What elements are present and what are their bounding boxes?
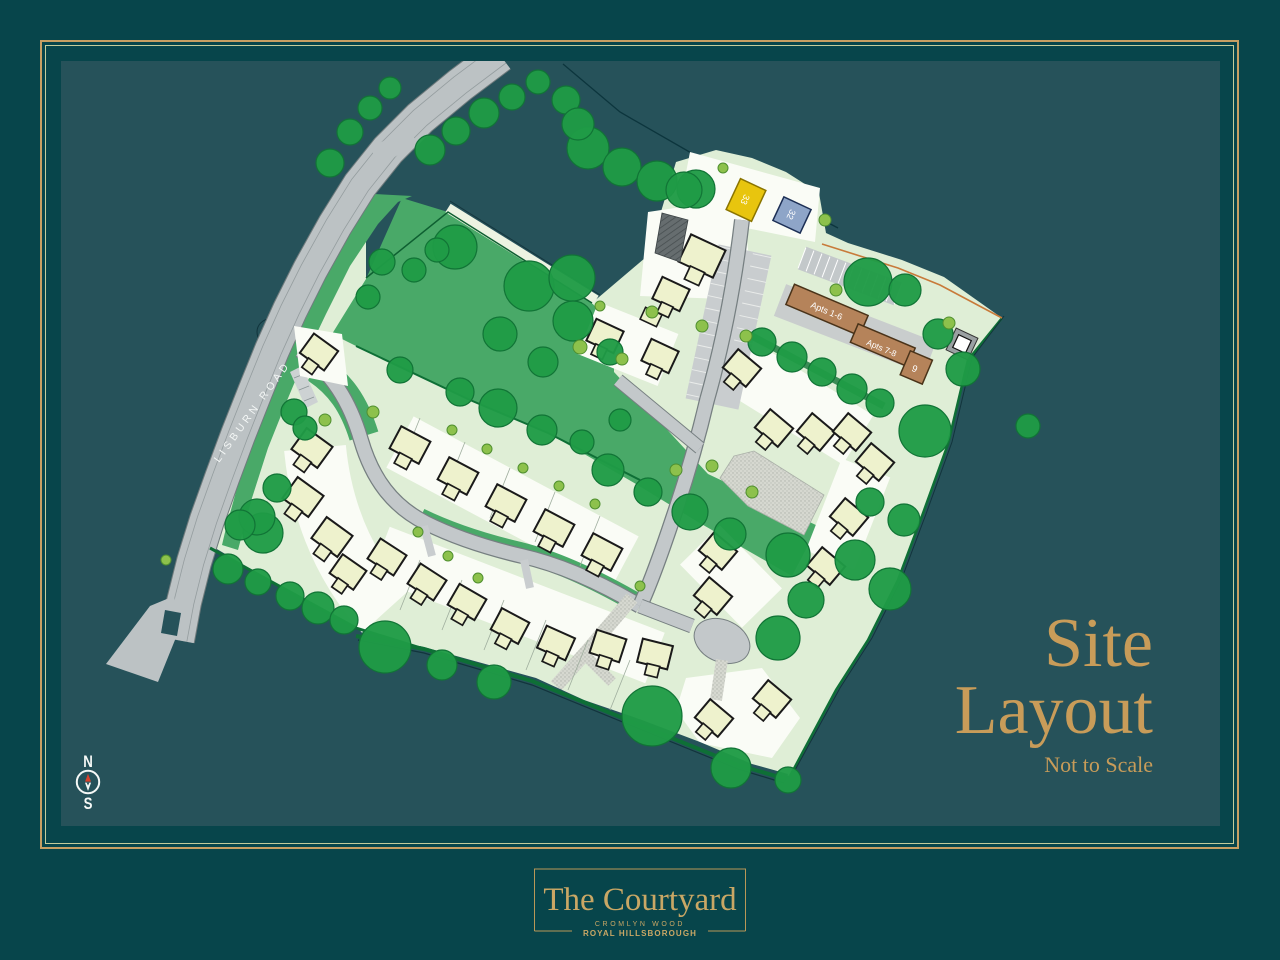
svg-text:CROMLYN WOOD: CROMLYN WOOD bbox=[595, 921, 685, 928]
svg-text:Not to Scale: Not to Scale bbox=[1044, 752, 1153, 777]
svg-text:S: S bbox=[84, 795, 93, 814]
svg-text:ROYAL HILLSBOROUGH: ROYAL HILLSBOROUGH bbox=[583, 929, 697, 938]
svg-text:The Courtyard: The Courtyard bbox=[543, 882, 737, 918]
svg-text:Layout: Layout bbox=[955, 672, 1154, 749]
svg-text:N: N bbox=[83, 753, 93, 772]
svg-text:Site: Site bbox=[1044, 605, 1153, 682]
